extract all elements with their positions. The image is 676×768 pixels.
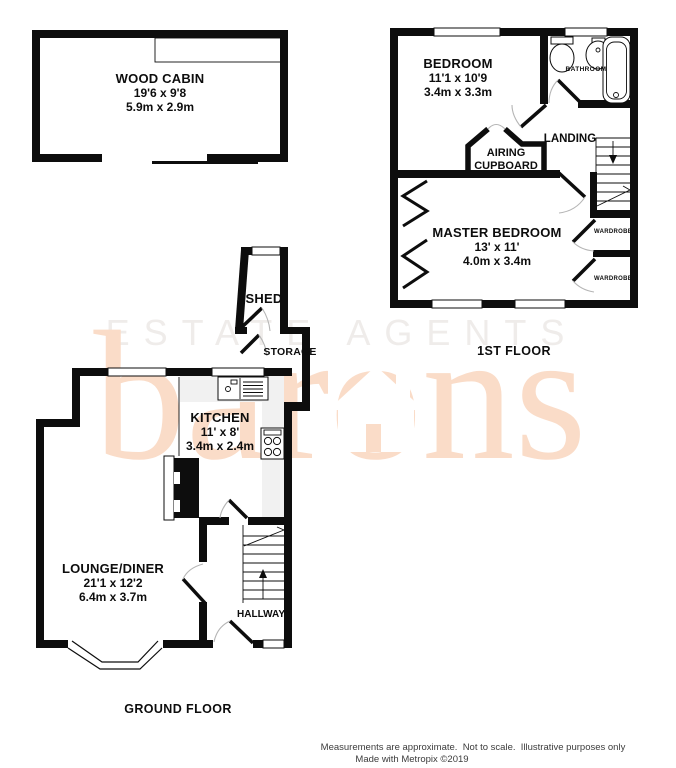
bifold-doors-icon: [403, 181, 427, 226]
room-dim-imperial: 19'6 x 9'8: [80, 86, 240, 100]
room-name: MASTER BEDROOM: [407, 225, 587, 240]
chimney-breast: [164, 456, 199, 520]
room-dim-metric: 4.0m x 3.4m: [407, 254, 587, 268]
lounge-diner-label: LOUNGE/DINER 21'1 x 12'2 6.4m x 3.7m: [53, 561, 173, 604]
room-dim-metric: 3.4m x 2.4m: [160, 439, 280, 453]
wardrobe-label-1: WARDROBE: [592, 229, 634, 236]
bedroom-window: [434, 28, 500, 36]
disclaimer-text: Measurements are approximate. Not to sca…: [270, 742, 676, 754]
room-dim-imperial: 11' x 8': [160, 425, 280, 439]
room-dim-imperial: 21'1 x 12'2: [53, 576, 173, 590]
room-dim-imperial: 13' x 11': [407, 240, 587, 254]
room-name: WOOD CABIN: [80, 71, 240, 86]
room-dim-metric: 6.4m x 3.7m: [53, 590, 173, 604]
cabin-window-strip: [155, 38, 282, 62]
room-dim-imperial: 11'1 x 10'9: [398, 71, 518, 85]
hallway-window: [263, 640, 284, 648]
floorplan-drawing: ESTATE AGENTS barons: [0, 0, 676, 768]
storage-label: STORAGE: [252, 346, 328, 358]
room-name: KITCHEN: [160, 410, 280, 425]
door-swing: [488, 125, 505, 130]
shed-window: [252, 247, 280, 255]
kitchen-label: KITCHEN 11' x 8' 3.4m x 2.4m: [160, 410, 280, 453]
front-door: [214, 621, 253, 643]
metropix-credit: Made with Metropix ©2019: [270, 754, 554, 766]
wood-cabin-label: WOOD CABIN 19'6 x 9'8 5.9m x 2.9m: [80, 71, 240, 114]
bedroom-label: BEDROOM 11'1 x 10'9 3.4m x 3.3m: [398, 56, 518, 99]
first-floor-title: 1ST FLOOR: [454, 344, 574, 358]
master-window-1: [432, 300, 482, 308]
room-dim-metric: 5.9m x 2.9m: [80, 100, 240, 114]
ground-floor-title: GROUND FLOOR: [118, 702, 238, 716]
stairs-up-icon: [243, 525, 284, 603]
hallway-label: HALLWAY: [227, 609, 295, 620]
master-bedroom-door: [559, 173, 585, 213]
bedroom-door: [512, 105, 546, 127]
kitchen-sink-icon: [218, 377, 268, 400]
lounge-door: [183, 564, 205, 603]
bathroom-door: [549, 80, 580, 103]
stairs-down-icon: [596, 138, 630, 206]
bay-window: [68, 641, 162, 669]
room-name: CUPBOARD: [466, 160, 546, 173]
kitchen-window: [212, 368, 264, 376]
kitchen-door: [220, 500, 247, 518]
bathroom-label: BATHROOM: [558, 66, 614, 74]
airing-cupboard-label: AIRING CUPBOARD: [466, 147, 546, 172]
master-bedroom-label: MASTER BEDROOM 13' x 11' 4.0m x 3.4m: [407, 225, 587, 268]
floorplan-canvas: ESTATE AGENTS barons: [0, 0, 676, 768]
lounge-window: [108, 368, 166, 376]
master-window-2: [515, 300, 565, 308]
bathroom-window: [565, 28, 607, 36]
wardrobe-label-2: WARDROBE: [592, 276, 634, 283]
room-dim-metric: 3.4m x 3.3m: [398, 85, 518, 99]
patio-door-threshold: [152, 161, 258, 164]
landing-label: LANDING: [537, 133, 603, 146]
room-name: AIRING: [466, 147, 546, 160]
room-name: LOUNGE/DINER: [53, 561, 173, 576]
room-name: BEDROOM: [398, 56, 518, 71]
shed-label: SHED: [240, 291, 288, 306]
